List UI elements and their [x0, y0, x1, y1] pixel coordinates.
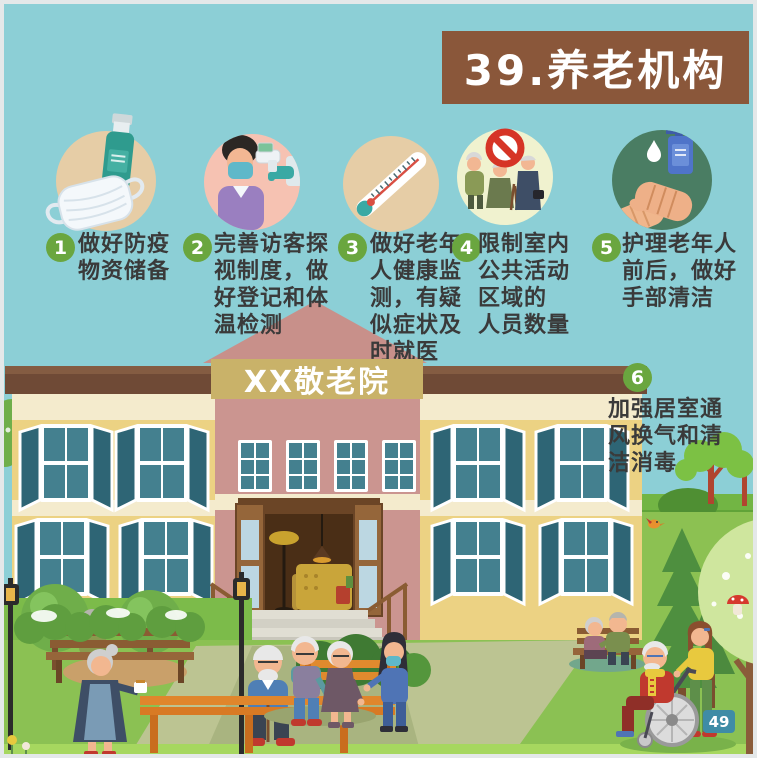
poster-title: 39.养老机构: [442, 31, 749, 104]
step-2-number-badge: 2: [183, 233, 212, 262]
step-5-text: 护理老年人 前后，做好 手部清洁: [622, 231, 757, 312]
hand-washing-icon: [610, 126, 712, 239]
step-4-number-badge: 4: [452, 233, 481, 262]
step-4-text: 限制室内 公共活动 区域的 人员数量: [478, 231, 588, 339]
no-gathering-icon: [457, 129, 553, 225]
mask-and-sanitizer-icon: [43, 113, 156, 236]
nursing-home-building: [5, 301, 647, 646]
thermometer-icon: [343, 136, 439, 232]
step-6-number-badge: 6: [623, 363, 652, 392]
step-2-text: 完善访客探 视制度，做 好登记和体 温检测: [214, 231, 349, 339]
elderly-care-poster: 39.养老机构 1 做好防疫 物资储备 2 完善访客探 视制度，做 好登记和体 …: [0, 0, 757, 758]
page-number-badge: 49: [703, 710, 735, 733]
step-5-number-badge: 5: [592, 233, 621, 262]
entrance-door: [236, 498, 382, 616]
building-sign: XX敬老院: [211, 359, 423, 399]
visitor-temperature-check-icon: [204, 134, 306, 230]
step-6-text: 加强居室通 风换气和清 洁消毒: [608, 396, 748, 477]
step-1-number-badge: 1: [46, 233, 75, 262]
step-3-number-badge: 3: [338, 233, 367, 262]
